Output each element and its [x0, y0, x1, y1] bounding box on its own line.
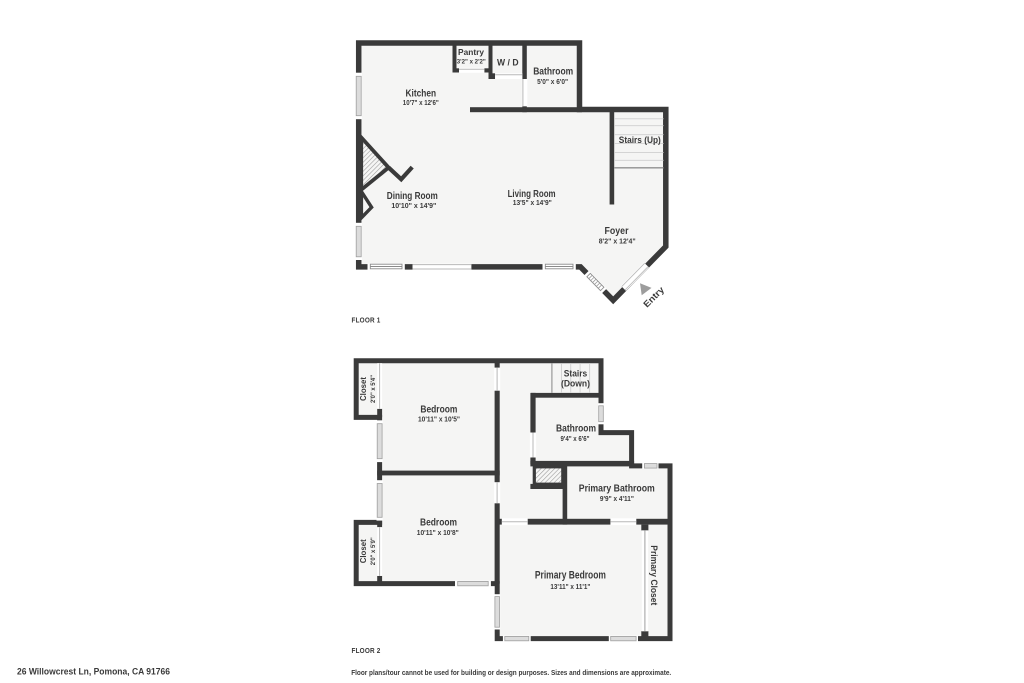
svg-text:Bathroom: Bathroom — [533, 67, 573, 78]
svg-text:5'0" x 6'0": 5'0" x 6'0" — [537, 79, 568, 86]
svg-text:2'0" x 5'9": 2'0" x 5'9" — [370, 537, 377, 565]
svg-text:Pantry: Pantry — [458, 47, 484, 57]
svg-text:26 Willowcrest Ln, Pomona, CA: 26 Willowcrest Ln, Pomona, CA 91766 — [17, 666, 170, 676]
svg-text:Primary Bedroom: Primary Bedroom — [535, 570, 606, 582]
svg-text:Primary Closet: Primary Closet — [649, 545, 659, 605]
svg-text:Dining Room: Dining Room — [387, 191, 438, 202]
svg-text:Primary Bathroom: Primary Bathroom — [579, 483, 655, 495]
svg-text:Closet: Closet — [358, 377, 368, 401]
svg-text:FLOOR 2: FLOOR 2 — [352, 648, 381, 655]
svg-text:W / D: W / D — [497, 57, 519, 67]
svg-text:13'5" x 14'9": 13'5" x 14'9" — [513, 200, 552, 207]
svg-text:10'10" x 14'9": 10'10" x 14'9" — [391, 203, 436, 210]
svg-text:Kitchen: Kitchen — [406, 89, 437, 100]
svg-text:Foyer: Foyer — [605, 226, 629, 237]
svg-text:2'0" x 5'4": 2'0" x 5'4" — [370, 375, 377, 403]
svg-text:Bedroom: Bedroom — [420, 518, 457, 529]
svg-text:FLOOR 1: FLOOR 1 — [352, 318, 381, 325]
svg-text:Floor plans/tour cannot be use: Floor plans/tour cannot be used for buil… — [351, 668, 671, 677]
svg-text:Stairs: Stairs — [564, 368, 588, 378]
svg-text:10'11" x 10'5": 10'11" x 10'5" — [418, 417, 460, 424]
svg-text:8'2" x 12'4": 8'2" x 12'4" — [599, 239, 636, 246]
svg-text:3'2" x 2'2": 3'2" x 2'2" — [457, 59, 486, 66]
svg-text:Bathroom: Bathroom — [556, 424, 596, 435]
svg-text:10'11" x 10'8": 10'11" x 10'8" — [417, 530, 459, 537]
svg-text:Living Room: Living Room — [508, 189, 556, 200]
svg-text:10'7" x 12'6": 10'7" x 12'6" — [403, 100, 439, 107]
svg-text:Stairs (Up): Stairs (Up) — [619, 135, 661, 145]
svg-text:(Down): (Down) — [561, 379, 590, 389]
svg-text:Closet: Closet — [358, 539, 368, 563]
svg-text:Bedroom: Bedroom — [420, 405, 457, 416]
svg-text:9'4" x 6'6": 9'4" x 6'6" — [561, 436, 590, 443]
svg-text:9'9" x 4'11": 9'9" x 4'11" — [600, 496, 634, 503]
svg-text:13'11" x 11'1": 13'11" x 11'1" — [550, 582, 590, 591]
